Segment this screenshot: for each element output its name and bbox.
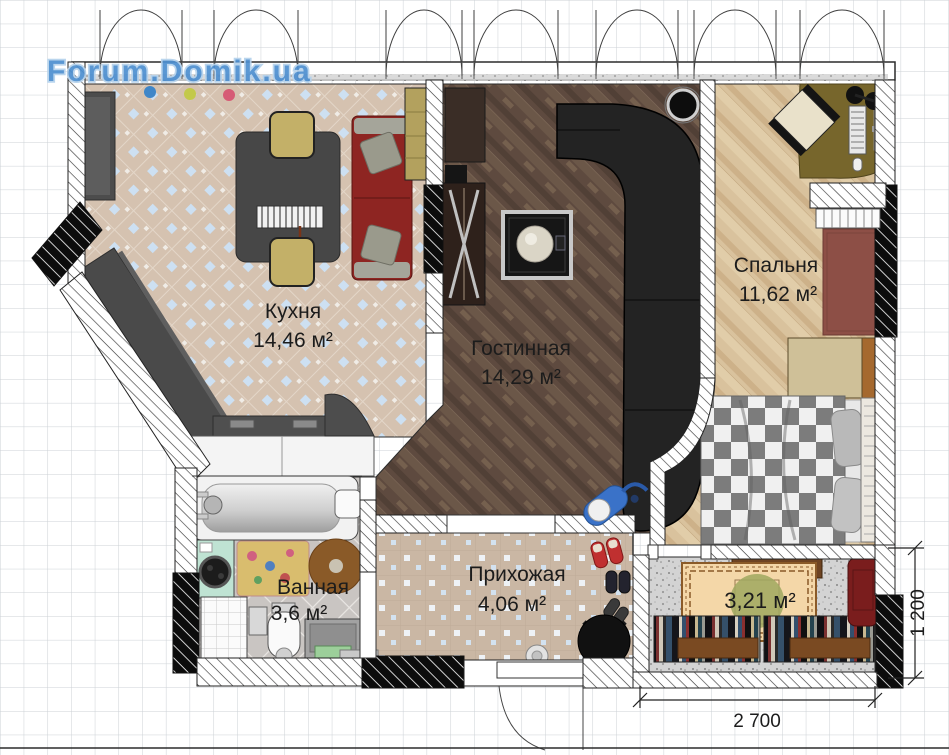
tub-faucet — [204, 496, 222, 514]
floor-plan-drawing: Кухня 14,46 м² Гостинная 14,29 м² Спальн… — [0, 0, 949, 755]
balcony-area-label: 3,21 м² — [724, 588, 795, 613]
washing-machine — [196, 540, 234, 598]
floor-plan-canvas: Кухня 14,46 м² Гостинная 14,29 м² Спальн… — [0, 0, 949, 755]
bath-cabinet — [249, 607, 267, 635]
kitchen-label: Кухня — [265, 300, 321, 323]
table-radiator-object — [257, 206, 323, 228]
coffee-table — [503, 212, 571, 278]
red-sofa — [352, 116, 412, 280]
bookshelves — [654, 616, 874, 662]
maroon-mat — [823, 229, 879, 335]
chair-bottom — [270, 238, 314, 286]
red-chair — [848, 558, 878, 626]
bathroom-furniture — [192, 476, 363, 673]
floor-speaker — [665, 87, 701, 123]
bed-blanket — [701, 396, 845, 544]
dimension-2700-text: 2 700 — [733, 711, 781, 732]
hallway-label: Прихожая — [468, 563, 565, 586]
media-cabinet — [445, 88, 485, 162]
watermark: Forum.Domik.ua — [47, 55, 312, 88]
chair-top — [270, 112, 314, 158]
tv-unit — [443, 183, 485, 305]
bathroom-area: 3,6 м² — [271, 602, 327, 625]
kitchen-area: 14,46 м² — [253, 329, 333, 352]
bed — [701, 396, 879, 544]
kitchen-shelf-cabinet — [405, 88, 428, 180]
bottom-black-pier — [362, 656, 464, 688]
bedroom-label: Спальня — [734, 254, 818, 277]
wall-sink — [335, 490, 361, 518]
hallway-area: 4,06 м² — [478, 593, 546, 616]
living-room-label: Гостинная — [471, 337, 571, 360]
pillow — [830, 409, 866, 468]
bathroom-label: Ванная — [277, 576, 349, 599]
dimension-1200-text: 1 200 — [908, 589, 929, 637]
pillow — [830, 477, 865, 534]
bedroom-niche — [810, 183, 886, 208]
daybed-bench — [788, 338, 882, 398]
bathtub — [192, 476, 358, 540]
bedroom-radiator — [816, 209, 880, 228]
entrance-door-leaf — [497, 662, 583, 678]
living-room-area: 14,29 м² — [481, 366, 561, 389]
bedroom-area: 11,62 м² — [739, 283, 817, 306]
